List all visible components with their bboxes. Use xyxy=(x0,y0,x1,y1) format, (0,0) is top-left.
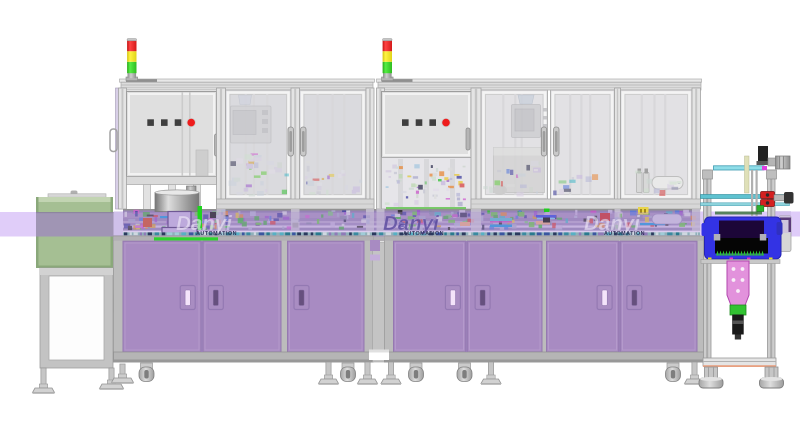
svg-text:AUTOMATION: AUTOMATION xyxy=(196,231,237,237)
svg-text:AUTOMATION: AUTOMATION xyxy=(403,231,444,237)
svg-text:AUTOMATION: AUTOMATION xyxy=(604,231,645,237)
